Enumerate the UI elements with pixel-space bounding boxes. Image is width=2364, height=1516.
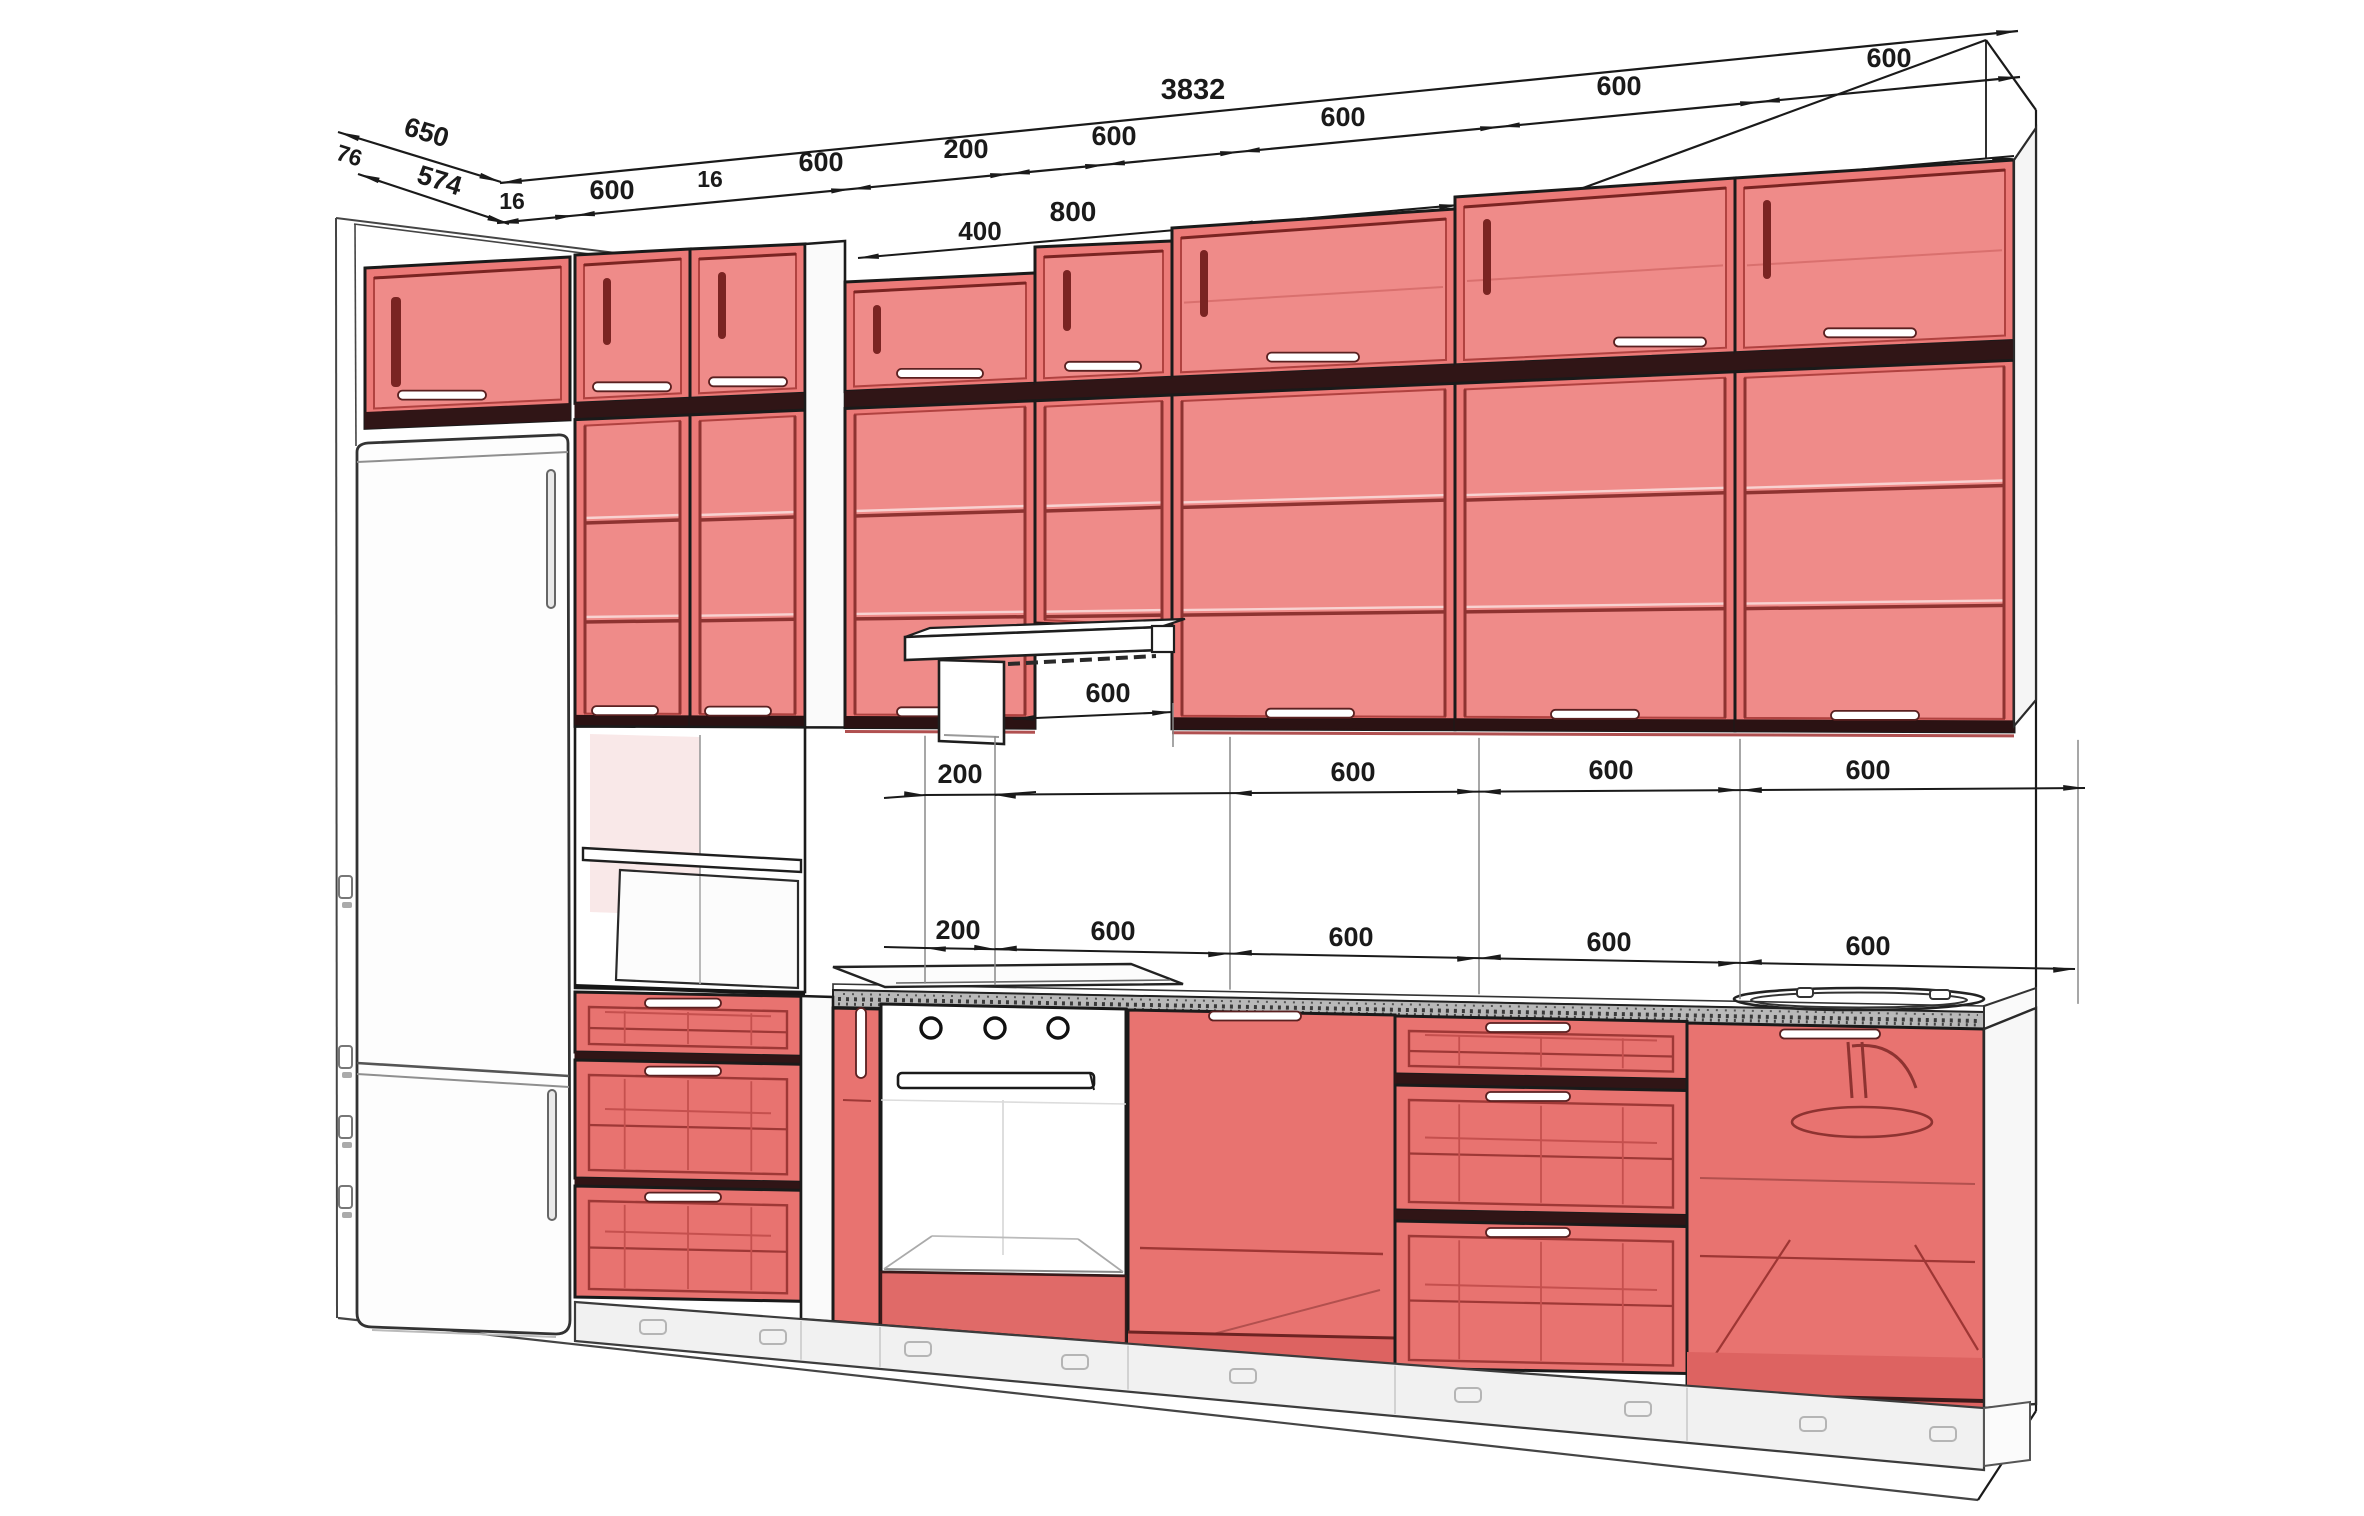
svg-text:3832: 3832 (1161, 74, 1226, 106)
svg-text:600: 600 (1085, 678, 1130, 708)
svg-text:200: 200 (943, 134, 988, 164)
svg-text:600: 600 (1596, 71, 1641, 101)
svg-text:600: 600 (1845, 931, 1890, 961)
svg-text:600: 600 (1328, 922, 1373, 952)
svg-text:16: 16 (499, 188, 525, 214)
svg-text:600: 600 (589, 175, 634, 205)
svg-text:600: 600 (1586, 927, 1631, 957)
svg-text:600: 600 (798, 147, 843, 177)
svg-text:600: 600 (1090, 916, 1135, 946)
svg-text:600: 600 (1091, 121, 1136, 151)
svg-text:600: 600 (1866, 43, 1911, 73)
svg-text:800: 800 (1050, 196, 1097, 227)
svg-text:600: 600 (1320, 102, 1365, 132)
svg-text:200: 200 (937, 759, 982, 789)
svg-text:200: 200 (935, 915, 980, 945)
svg-text:600: 600 (1845, 755, 1890, 785)
svg-text:400: 400 (958, 216, 1001, 246)
svg-text:600: 600 (1330, 757, 1375, 787)
svg-text:600: 600 (1588, 755, 1633, 785)
svg-text:16: 16 (697, 166, 723, 192)
